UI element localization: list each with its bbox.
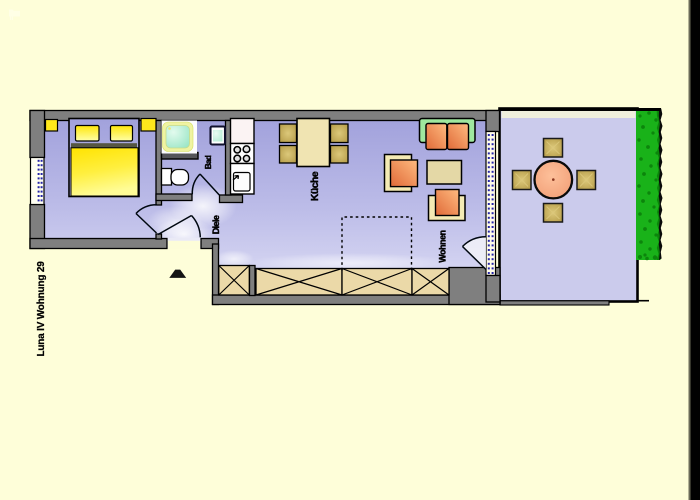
svg-text:Wohnen: Wohnen [438, 230, 448, 262]
svg-text:Diele: Diele [211, 215, 221, 234]
svg-text:Küche: Küche [310, 171, 321, 201]
svg-text:Luna IV Wohnung 29: Luna IV Wohnung 29 [36, 261, 47, 357]
svg-text:Bad: Bad [204, 155, 213, 169]
